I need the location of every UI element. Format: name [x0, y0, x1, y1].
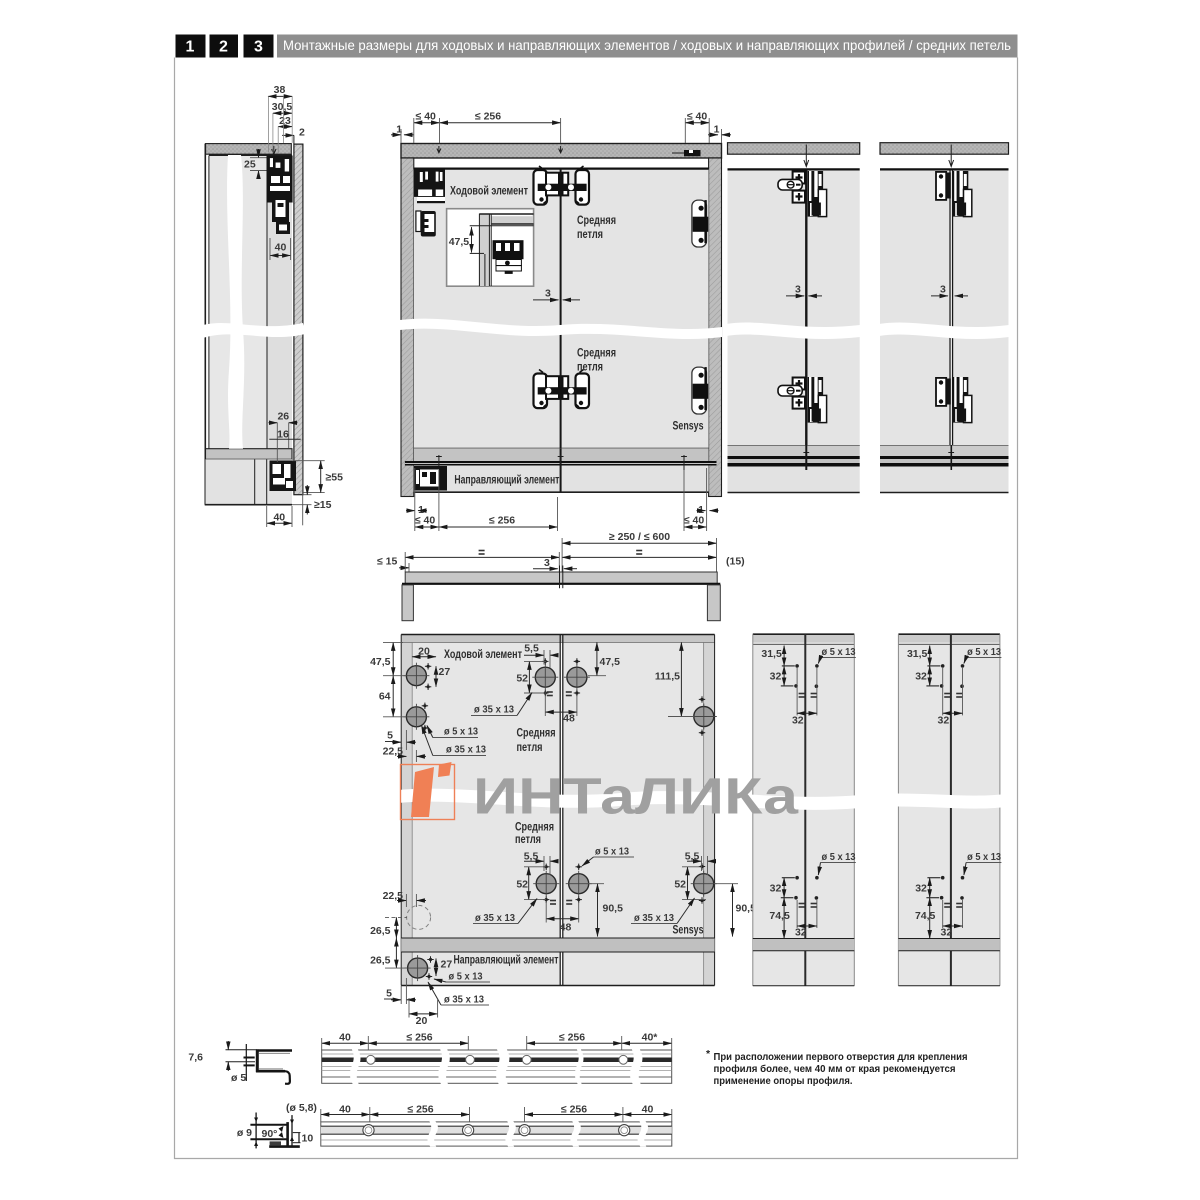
svg-text:≤ 40: ≤ 40: [416, 111, 437, 123]
svg-text:32: 32: [792, 715, 804, 727]
svg-text:38: 38: [274, 84, 286, 96]
svg-text:ø 35 x 13: ø 35 x 13: [444, 994, 484, 1006]
svg-text:31,5: 31,5: [761, 648, 782, 660]
svg-text:Ходовой элемент: Ходовой элемент: [444, 649, 522, 661]
svg-text:64: 64: [379, 691, 391, 703]
svg-text:≤ 256: ≤ 256: [561, 1104, 587, 1116]
svg-text:Sensys: Sensys: [673, 421, 704, 433]
svg-text:47,5: 47,5: [449, 236, 470, 248]
svg-text:Средняя: Средняя: [517, 728, 556, 740]
svg-text:≤ 256: ≤ 256: [407, 1104, 433, 1116]
svg-text:74,5: 74,5: [769, 910, 790, 922]
svg-text:3: 3: [795, 284, 801, 296]
svg-text:3: 3: [940, 284, 946, 296]
svg-text:При расположении первого отвер: При расположении первого отверстия для к…: [714, 1051, 968, 1063]
svg-text:Направляющий элемент: Направляющий элемент: [454, 955, 559, 967]
svg-text:петля: петля: [577, 229, 603, 241]
svg-text:ИНТаЛИКа: ИНТаЛИКа: [473, 768, 799, 825]
svg-text:ø 5 x 13: ø 5 x 13: [449, 971, 483, 983]
svg-text:27: 27: [441, 959, 453, 971]
svg-text:20: 20: [416, 1015, 428, 1027]
svg-text:52: 52: [516, 673, 528, 685]
svg-text:≤ 40: ≤ 40: [684, 515, 705, 527]
svg-text:2: 2: [299, 127, 305, 139]
svg-text:3: 3: [545, 288, 551, 300]
svg-text:5,5: 5,5: [524, 643, 539, 655]
svg-text:47,5: 47,5: [370, 656, 391, 668]
svg-text:40: 40: [339, 1032, 351, 1044]
svg-text:40: 40: [273, 512, 285, 524]
svg-text:Sensys: Sensys: [673, 925, 704, 937]
svg-text:применение опоры профиля.: применение опоры профиля.: [714, 1075, 853, 1087]
svg-text:32: 32: [795, 927, 807, 939]
svg-text:5: 5: [387, 730, 393, 742]
svg-text:40*: 40*: [642, 1032, 659, 1044]
svg-text:26: 26: [277, 411, 289, 423]
svg-text:1: 1: [186, 39, 195, 56]
svg-text:ø 5 x 13: ø 5 x 13: [595, 846, 629, 858]
svg-text:(ø 5,8): (ø 5,8): [286, 1102, 317, 1114]
svg-text:(15): (15): [726, 556, 745, 568]
svg-text:петля: петля: [515, 834, 541, 846]
svg-text:30,5: 30,5: [272, 101, 293, 113]
svg-text:3: 3: [544, 557, 550, 569]
svg-text:47,5: 47,5: [600, 656, 621, 668]
svg-text:ø 5 x 13: ø 5 x 13: [822, 851, 856, 863]
svg-text:3: 3: [254, 39, 263, 56]
svg-text:петля: петля: [517, 742, 543, 754]
svg-text:52: 52: [674, 879, 686, 891]
svg-text:22,5: 22,5: [383, 746, 404, 758]
svg-text:1: 1: [714, 124, 720, 136]
svg-text:≤ 256: ≤ 256: [406, 1032, 432, 1044]
svg-text:40: 40: [339, 1104, 351, 1116]
svg-text:Средняя: Средняя: [577, 348, 616, 360]
svg-text:23: 23: [279, 115, 291, 127]
svg-text:ø 35 x 13: ø 35 x 13: [474, 704, 514, 716]
svg-text:48: 48: [563, 713, 575, 725]
svg-text:26,5: 26,5: [370, 955, 391, 967]
svg-text:7,6: 7,6: [188, 1052, 203, 1064]
svg-text:≤ 15: ≤ 15: [377, 556, 398, 568]
svg-text:32: 32: [770, 671, 782, 683]
svg-text:ø 9: ø 9: [237, 1127, 252, 1139]
svg-text:ø 35 x 13: ø 35 x 13: [446, 744, 486, 756]
svg-text:профиля более, чем 40 мм от кр: профиля более, чем 40 мм от края рекомен…: [714, 1063, 956, 1075]
svg-text:90°: 90°: [262, 1128, 278, 1140]
svg-text:≤ 40: ≤ 40: [687, 111, 708, 123]
svg-text:ø 35 x 13: ø 35 x 13: [475, 912, 515, 924]
svg-text:32: 32: [770, 883, 782, 895]
svg-text:Направляющий элемент: Направляющий элемент: [454, 475, 559, 487]
svg-text:90,5: 90,5: [603, 903, 624, 915]
svg-text:ø 35 x 13: ø 35 x 13: [634, 912, 674, 924]
svg-text:≤ 256: ≤ 256: [475, 111, 501, 123]
svg-text:ø 5 x 13: ø 5 x 13: [822, 646, 856, 658]
svg-text:≤ 256: ≤ 256: [559, 1032, 585, 1044]
svg-text:52: 52: [516, 879, 528, 891]
svg-text:ø 5 x 13: ø 5 x 13: [444, 726, 478, 738]
svg-text:27: 27: [439, 666, 451, 678]
svg-text:≥15: ≥15: [314, 499, 332, 511]
svg-text:петля: петля: [577, 362, 603, 374]
svg-text:16: 16: [277, 429, 289, 441]
svg-text:5: 5: [386, 988, 392, 1000]
svg-text:1: 1: [698, 504, 704, 516]
svg-text:2: 2: [219, 39, 228, 56]
svg-text:Средняя: Средняя: [577, 215, 616, 227]
svg-text:≥ 250 / ≤ 600: ≥ 250 / ≤ 600: [609, 531, 670, 543]
svg-text:20: 20: [418, 646, 430, 658]
svg-text:Ходовой элемент: Ходовой элемент: [450, 186, 528, 198]
svg-text:25: 25: [244, 159, 256, 171]
svg-text:Монтажные размеры для ходовых: Монтажные размеры для ходовых и направля…: [283, 37, 1011, 53]
svg-text:10: 10: [302, 1133, 314, 1145]
svg-text:111,5: 111,5: [655, 671, 680, 683]
svg-text:≥55: ≥55: [326, 472, 344, 484]
svg-text:40: 40: [275, 242, 287, 254]
svg-text:ø 5: ø 5: [231, 1072, 246, 1084]
svg-text:26,5: 26,5: [370, 925, 391, 937]
svg-text:≤ 256: ≤ 256: [489, 515, 515, 527]
svg-text:40: 40: [642, 1104, 654, 1116]
svg-text:48: 48: [560, 922, 572, 934]
svg-text:≤ 40: ≤ 40: [415, 515, 436, 527]
